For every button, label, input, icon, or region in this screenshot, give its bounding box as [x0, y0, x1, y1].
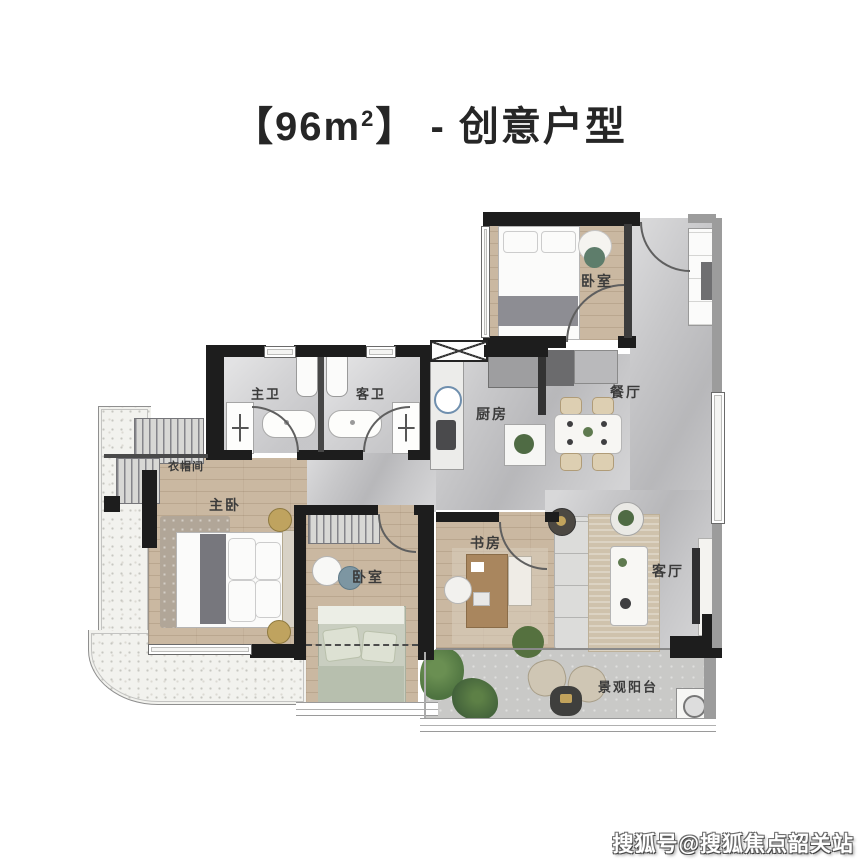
room-label-dining: 餐厅 — [610, 382, 642, 402]
pillow — [255, 542, 281, 580]
window — [711, 392, 725, 524]
bed-runner — [200, 534, 226, 624]
wall — [206, 345, 224, 460]
wall — [318, 357, 324, 452]
wall — [545, 512, 559, 522]
room-label-master-bath: 主卫 — [251, 384, 281, 403]
wardrobe-second-bedroom — [308, 514, 380, 544]
balcony-wall — [704, 658, 716, 722]
dining-chair — [560, 453, 582, 471]
wall — [142, 470, 157, 548]
wall — [394, 345, 430, 357]
washer-drum — [683, 695, 706, 718]
wall — [484, 345, 548, 357]
wall — [294, 505, 306, 660]
pillow — [228, 580, 256, 622]
nightstand-lamp — [268, 508, 292, 532]
pillow — [255, 580, 281, 618]
bed-blanket — [498, 296, 578, 326]
bay-window-sill — [296, 702, 438, 716]
title-suffix: 】 - 创意户型 — [375, 105, 627, 149]
window — [481, 226, 490, 338]
exterior-wall — [688, 214, 716, 223]
sideboard — [574, 350, 618, 384]
wall — [483, 212, 640, 226]
desk-paper — [471, 562, 484, 572]
bed-sheet — [318, 606, 404, 624]
stove — [436, 420, 456, 450]
wall-pier — [104, 496, 120, 512]
wall — [306, 505, 378, 515]
wall — [436, 512, 499, 522]
room-label-bedroom-top: 卧室 — [581, 271, 613, 291]
tea-set — [560, 694, 572, 703]
hallway-floor — [306, 452, 436, 512]
wall — [250, 644, 306, 658]
wall — [297, 450, 363, 460]
pillow — [541, 231, 576, 253]
balcony-threshold — [436, 648, 670, 653]
wall — [624, 224, 632, 338]
drain — [350, 420, 355, 425]
fridge — [544, 350, 574, 386]
plate — [567, 439, 573, 445]
window — [366, 346, 396, 358]
plant-icon — [584, 247, 605, 268]
window — [264, 346, 296, 358]
utility-shaft — [430, 340, 488, 362]
balcony-railing — [420, 718, 716, 732]
kitchen-sink — [434, 386, 462, 414]
room-label-living: 客厅 — [652, 561, 684, 581]
toilet-master — [296, 355, 318, 397]
window — [148, 644, 252, 655]
room-label-study: 书房 — [470, 533, 502, 553]
washbasin-master — [226, 402, 254, 454]
pillow — [228, 538, 256, 580]
plant-icon — [618, 510, 634, 526]
room-label-cloakroom: 衣帽间 — [168, 458, 204, 474]
sofa — [554, 516, 590, 650]
nightstand-lamp — [267, 620, 291, 644]
island-plant — [514, 434, 534, 454]
page-title: 【96m2】 - 创意户型 — [0, 94, 860, 152]
title-superscript: 2 — [361, 106, 375, 131]
coffee-table — [610, 546, 648, 626]
wall — [206, 450, 252, 460]
dining-chair — [560, 397, 582, 415]
room-label-balcony: 景观阳台 — [598, 677, 658, 696]
room-label-kitchen: 厨房 — [476, 404, 508, 424]
desk-chair — [444, 576, 472, 604]
wall — [538, 357, 546, 415]
plate — [567, 421, 573, 427]
toilet-guest — [326, 355, 348, 397]
wall — [418, 505, 434, 660]
desk-book — [473, 592, 490, 606]
table-centerpiece — [583, 427, 593, 437]
balcony-edge — [424, 652, 426, 718]
wall — [420, 357, 430, 460]
pillow — [503, 231, 538, 253]
bay-window-line — [306, 644, 418, 648]
table-plant — [618, 558, 627, 567]
tv-screen — [692, 548, 700, 624]
room-label-second-bedroom: 卧室 — [352, 567, 384, 587]
side-table — [312, 556, 342, 586]
plate — [601, 439, 607, 445]
room-label-master-bedroom: 主卧 — [209, 495, 241, 515]
plate — [601, 421, 607, 427]
study-plant — [512, 626, 544, 658]
room-label-guest-bath: 客卫 — [356, 384, 386, 403]
watermark: 搜狐号@搜狐焦点韶关站 — [613, 828, 854, 858]
kitchen-counter — [430, 358, 464, 470]
floor-plan-page: 【96m2】 - 创意户型 — [0, 0, 860, 860]
wall — [294, 345, 366, 357]
dining-chair — [592, 453, 614, 471]
title-prefix: 【96m — [233, 105, 361, 149]
table-tray — [620, 598, 631, 609]
